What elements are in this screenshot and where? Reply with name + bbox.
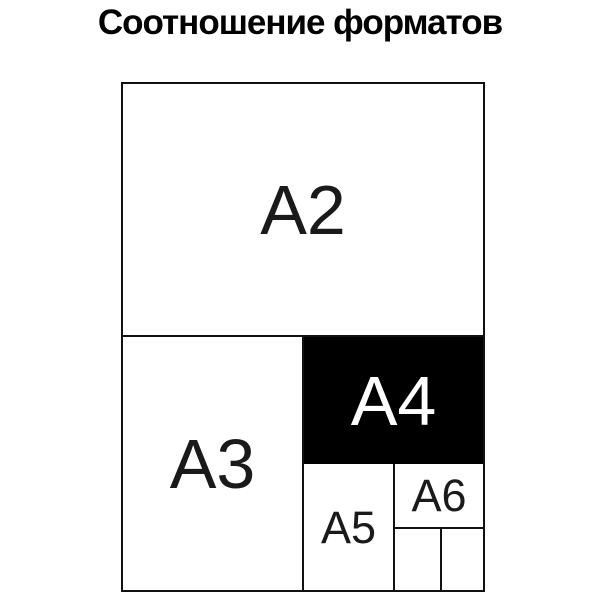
format-label-a3: A3: [170, 429, 256, 499]
format-label-a5: A5: [321, 505, 376, 550]
format-rect-a5: A5: [304, 464, 395, 590]
format-rect-a3: A3: [123, 337, 304, 590]
page-title: Соотношение форматов: [0, 3, 600, 43]
page: Соотношение форматов A2 A3 A4 A5 A6: [0, 0, 600, 600]
format-label-a4: A4: [351, 366, 437, 436]
format-rect-a4-highlighted: A4: [304, 337, 483, 464]
format-rect-a7-left: [395, 529, 442, 590]
format-ratio-diagram: A2 A3 A4 A5 A6: [121, 82, 485, 592]
format-rect-a2: A2: [123, 84, 483, 337]
format-rect-a7-right: [442, 529, 483, 590]
format-rect-a6: A6: [395, 464, 483, 529]
format-label-a2: A2: [260, 175, 346, 245]
format-label-a6: A6: [411, 473, 466, 518]
